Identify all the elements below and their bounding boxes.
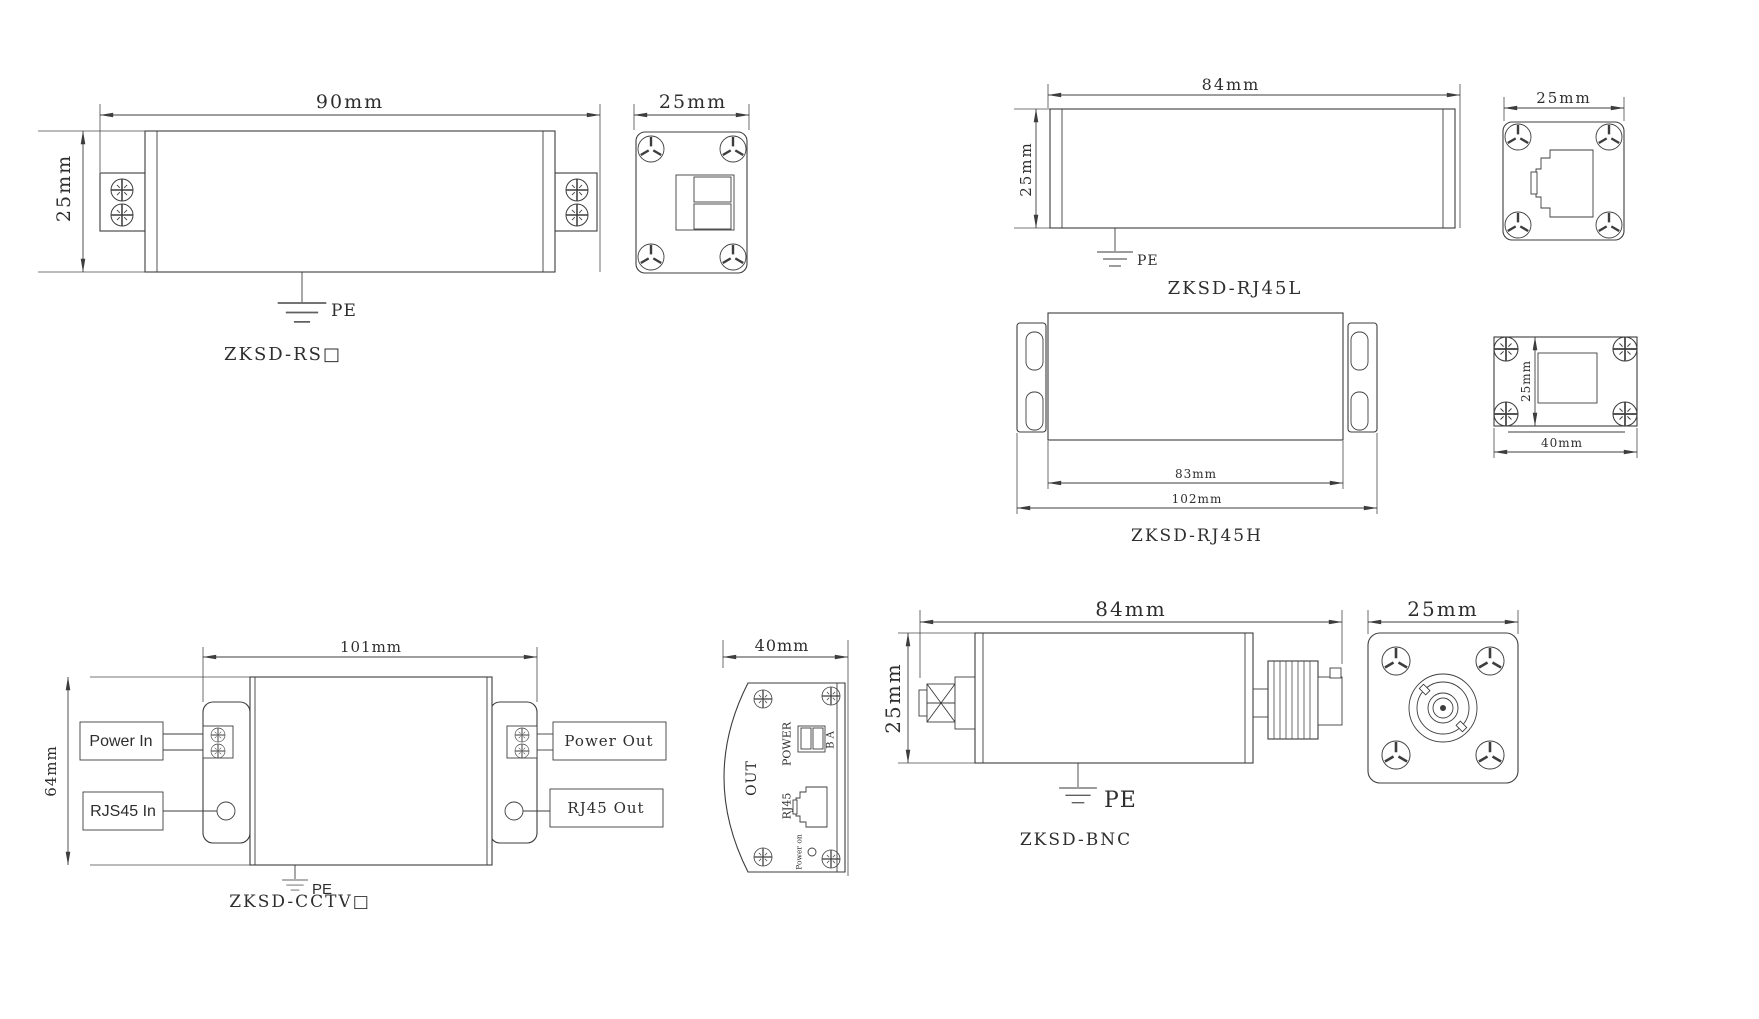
- dimension-inner-width: 83mm: [1048, 441, 1343, 489]
- terminal-block: [676, 175, 734, 230]
- device-body: [1048, 313, 1343, 440]
- ground-label: PE: [331, 301, 357, 321]
- dimension-height: 25mm: [1014, 109, 1050, 228]
- dimension-label: 83mm: [1175, 467, 1217, 481]
- power-on-label: Power on: [795, 834, 804, 870]
- port-label: RJS45 In: [90, 803, 156, 820]
- zksd-rj45h-front-view: 83mm 102mm: [1017, 313, 1377, 514]
- zksd-rs-end-view: 25mm: [634, 91, 749, 273]
- dimension-label: 25mm: [659, 91, 727, 113]
- device-body: [250, 677, 492, 865]
- dimension-label: 25mm: [53, 154, 75, 222]
- dimension-end-width: 25mm: [1504, 89, 1624, 121]
- cross-screw-icon: [822, 850, 840, 868]
- bnc-female-connector: [919, 677, 975, 729]
- model-label: ZKSD-RJ45H: [1131, 526, 1263, 546]
- zksd-rs-figure: 90mm 25mm PE 25mm: [38, 91, 749, 365]
- dimension-label: 25mm: [1407, 597, 1478, 621]
- cross-screw-icon: [111, 179, 133, 201]
- end-plate: [724, 683, 845, 872]
- dimension-label: 40mm: [755, 636, 810, 655]
- zksd-cctv-front-view: Power In RJS45 In Power Out RJ45 Out: [42, 638, 666, 898]
- zksd-bnc-figure: 84mm 25mm PE 25mm: [881, 597, 1518, 850]
- dimension-label: 90mm: [316, 91, 384, 113]
- zksd-cctv-figure: Power In RJS45 In Power Out RJ45 Out: [42, 636, 848, 912]
- bracket-slot: [1351, 332, 1368, 370]
- bnc-male-connector: [1253, 661, 1342, 739]
- model-label: ZKSD-RS□: [224, 344, 342, 365]
- dimension-label: 40mm: [1541, 436, 1583, 450]
- panel-out-label: OUT: [744, 760, 760, 796]
- panel-power-label: POWER: [781, 721, 794, 766]
- dimension-label: 101mm: [340, 638, 402, 656]
- cross-screw-icon: [566, 204, 588, 226]
- zksd-rj45h-end-view: 25mm 40mm: [1494, 337, 1637, 458]
- port-label: Power Out: [564, 732, 653, 750]
- connector-opening: [1538, 353, 1597, 403]
- cross-screw-icon: [566, 179, 588, 201]
- pe-ground-symbol: PE: [1097, 228, 1159, 269]
- device-body: [145, 131, 555, 272]
- bnc-connector-icon: [1409, 674, 1477, 742]
- rj45-in-callout: RJS45 In: [83, 792, 217, 830]
- model-label: ZKSD-BNC: [1020, 830, 1132, 850]
- bracket-slot: [1026, 332, 1043, 370]
- zksd-rj45l-end-view: 25mm: [1503, 89, 1624, 240]
- model-label: ZKSD-RJ45L: [1168, 278, 1303, 299]
- ground-label: PE: [1104, 788, 1137, 813]
- cross-screw-icon: [211, 728, 225, 742]
- end-cap-bracket: [203, 702, 250, 843]
- zksd-dimension-drawing: 90mm 25mm PE 25mm: [0, 0, 1759, 1019]
- earth-icon: [1059, 788, 1097, 803]
- zksd-rj45h-figure: 83mm 102mm 25mm: [1017, 313, 1637, 546]
- power-led-icon: [808, 848, 816, 856]
- cross-screw-icon: [754, 690, 772, 708]
- cross-screw-icon: [1613, 337, 1637, 361]
- terminal-ba-label: B A: [826, 730, 837, 749]
- panel-rj45-label: RJ45: [781, 793, 794, 820]
- cross-screw-icon: [754, 848, 772, 866]
- dimension-label: 102mm: [1172, 492, 1223, 506]
- dimension-label: 25mm: [881, 662, 905, 733]
- dimension-end-width: 25mm: [1368, 597, 1518, 634]
- power-in-callout: Power In: [80, 722, 203, 760]
- model-label: ZKSD-CCTV□: [229, 892, 371, 912]
- zksd-bnc-end-view: 25mm: [1368, 597, 1518, 783]
- dimension-label: 25mm: [1536, 89, 1592, 107]
- zksd-rj45l-front-view: 84mm 25mm PE: [1014, 75, 1460, 269]
- power-out-callout: Power Out: [537, 722, 666, 760]
- zksd-bnc-front-view: 84mm 25mm PE: [881, 597, 1342, 813]
- zksd-cctv-end-view: 40mm OUT POWER B A RJ45 Power on: [723, 636, 848, 876]
- zksd-rs-front-view: 90mm 25mm PE: [38, 91, 600, 322]
- bracket-slot: [1351, 392, 1368, 430]
- device-body: [975, 633, 1253, 763]
- ground-label: PE: [1137, 253, 1159, 269]
- cross-screw-icon: [111, 204, 133, 226]
- cross-screw-icon: [822, 687, 840, 705]
- cross-screw-icon: [515, 728, 529, 742]
- dimension-end-width: 40mm: [1494, 428, 1637, 458]
- cross-screw-icon: [1494, 402, 1518, 426]
- cross-screw-icon: [1613, 402, 1637, 426]
- bracket-slot: [1026, 392, 1043, 430]
- dimension-label: 25mm: [1017, 141, 1035, 197]
- rj45-out-callout: RJ45 Out: [523, 789, 663, 827]
- mounting-bracket: [555, 173, 597, 231]
- dimension-label: 84mm: [1202, 75, 1261, 94]
- rj45-port-circle: [217, 802, 235, 820]
- pe-ground-symbol: PE: [1059, 763, 1137, 813]
- zksd-rj45l-figure: 84mm 25mm PE 25mm: [1014, 75, 1624, 299]
- pe-ground-symbol: PE: [278, 272, 357, 322]
- dimension-label: 64mm: [42, 745, 60, 797]
- dimension-label: 25mm: [1519, 360, 1533, 402]
- dimension-end-width: 25mm: [634, 91, 749, 130]
- technical-drawing-sheet: 90mm 25mm PE 25mm: [0, 0, 1759, 1019]
- port-label: Power In: [89, 733, 152, 750]
- rj45-port-circle: [505, 802, 523, 820]
- earth-icon: [1097, 252, 1133, 266]
- cross-screw-icon: [515, 744, 529, 758]
- earth-icon: [278, 303, 327, 322]
- earth-icon: [282, 880, 308, 890]
- power-terminal-block: [798, 726, 825, 752]
- device-body: [1050, 109, 1455, 228]
- dimension-label: 84mm: [1095, 597, 1166, 621]
- cross-screw-icon: [1494, 337, 1518, 361]
- cross-screw-icon: [211, 744, 225, 758]
- port-label: RJ45 Out: [567, 799, 644, 817]
- end-cap-bracket: [490, 702, 537, 843]
